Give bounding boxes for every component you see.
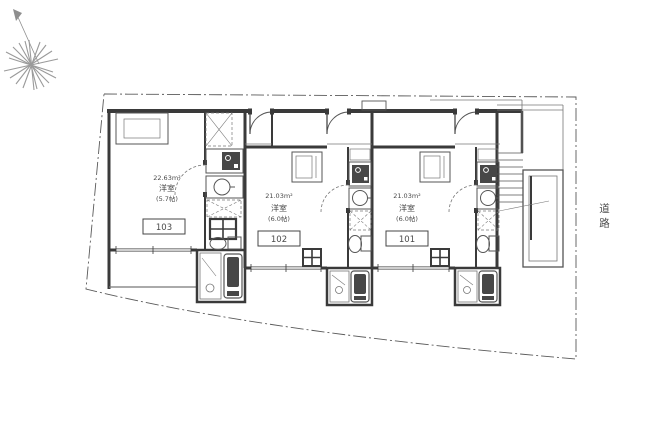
shelf <box>350 149 370 160</box>
kitchen-sink-icon <box>349 162 371 186</box>
road-label: 道路 <box>598 202 610 232</box>
bathtub-icon <box>224 254 242 298</box>
service-shaft <box>206 113 232 146</box>
unit-102-tatami-label: (6.0帖) <box>268 214 290 223</box>
washbasin-icon <box>206 176 243 198</box>
unit-101-area-label: 21.03m² <box>393 192 421 200</box>
unit-101-tatami-label: (6.0帖) <box>396 214 418 223</box>
unit-103-room-type-label: 洋室 <box>159 183 175 193</box>
meter-box <box>362 101 386 110</box>
closet <box>292 152 322 182</box>
shower-room <box>200 253 221 299</box>
unit-103: 22.63m² 洋室 (5.7帖) 103 <box>116 113 243 299</box>
washing-machine-icon <box>210 219 236 239</box>
unit-102-area-label: 21.03m² <box>265 192 293 200</box>
windows <box>110 246 455 272</box>
water-heater-icon <box>431 249 449 266</box>
toilet-icon <box>349 236 372 253</box>
unit-102-room-type-label: 洋室 <box>271 203 287 213</box>
north-compass-icon <box>4 9 58 90</box>
bathtub-icon <box>479 271 497 302</box>
washbasin-icon <box>349 188 371 209</box>
closet <box>116 113 168 144</box>
bathtub-icon <box>351 271 369 302</box>
unit-101-number: 101 <box>399 235 415 245</box>
unit-101-room-type-label: 洋室 <box>399 203 415 213</box>
unit-103-number: 103 <box>156 223 172 233</box>
closet <box>420 152 450 182</box>
unit-103-tatami-label: (5.7帖) <box>156 194 178 203</box>
unit-102-number: 102 <box>271 235 287 245</box>
washer-pan-icon <box>350 211 371 230</box>
floor-plan: 道路 <box>0 0 654 423</box>
interior-door-arcs <box>175 165 476 212</box>
unit-103-area-label: 22.63m² <box>153 174 181 182</box>
shower-room <box>330 271 349 302</box>
shower-room <box>458 271 477 302</box>
shelf <box>478 149 498 160</box>
unit-102: 21.03m² 洋室 (6.0帖) 102 <box>258 149 371 302</box>
water-heater-icon <box>303 249 321 266</box>
washer-pan-icon <box>207 200 241 217</box>
staircase <box>497 153 563 267</box>
balcony <box>109 250 197 287</box>
unit-101: 21.03m² 洋室 (6.0帖) 101 <box>386 149 499 302</box>
kitchen-sink-icon <box>477 162 499 186</box>
kitchen-sink-icon <box>206 149 243 173</box>
